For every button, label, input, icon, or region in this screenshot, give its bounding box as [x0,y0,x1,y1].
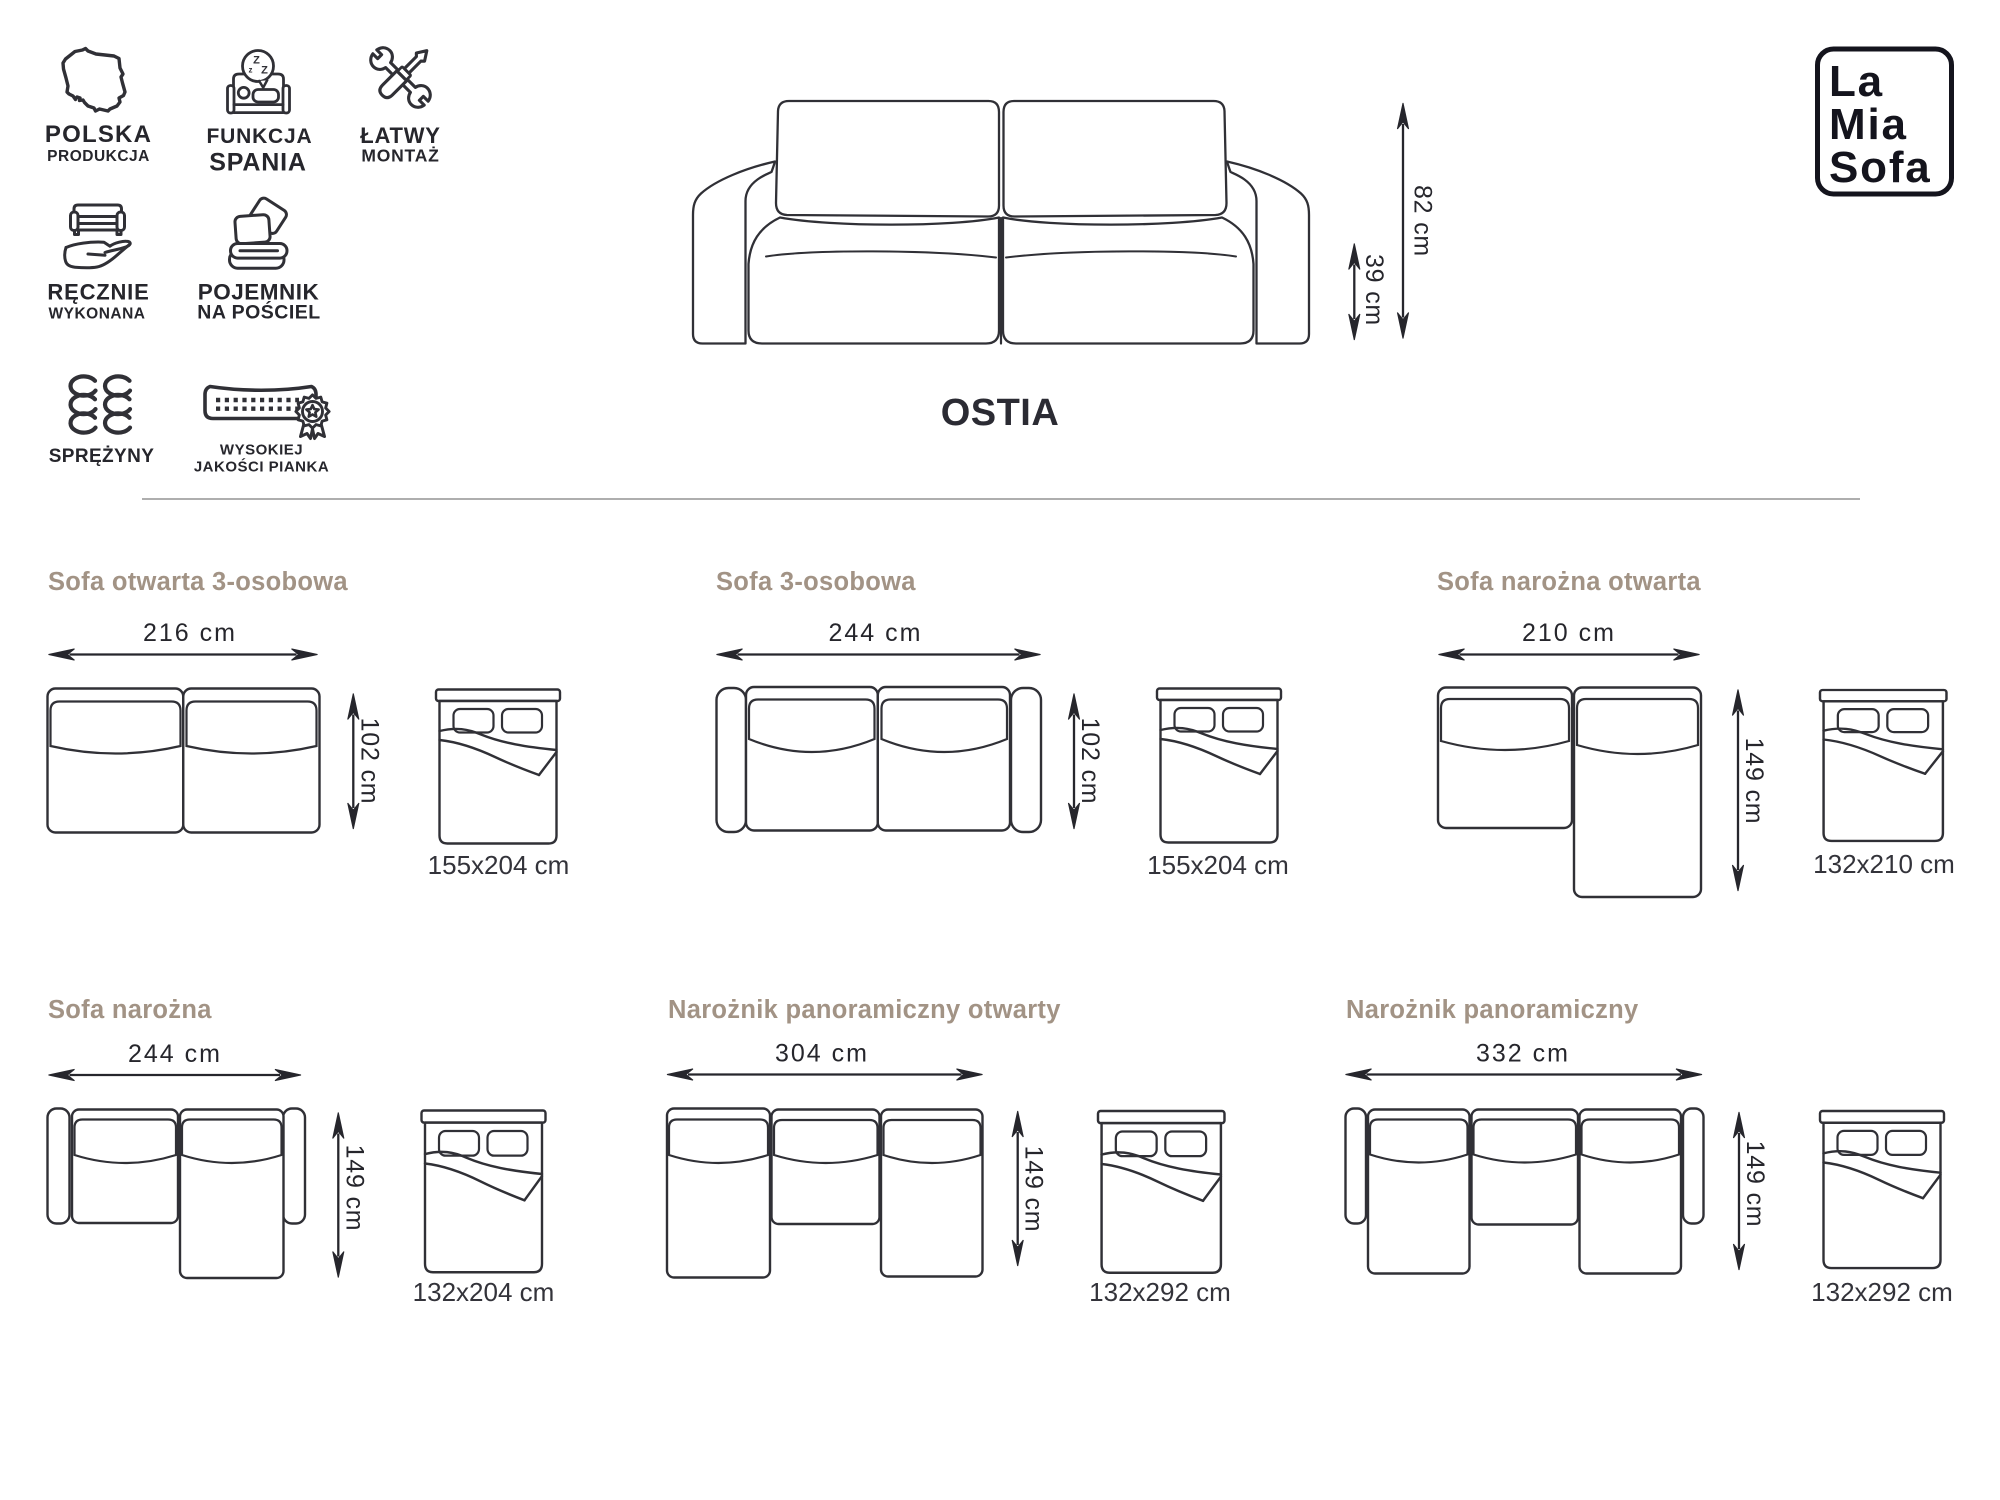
svg-text:MONTAŻ: MONTAŻ [361,146,439,166]
svg-text:PRODUKCJA: PRODUKCJA [47,148,150,165]
svg-text:102 cm: 102 cm [1076,718,1104,805]
svg-text:Mia: Mia [1829,100,1908,149]
svg-text:149 cm: 149 cm [340,1145,368,1232]
svg-text:ŁATWY: ŁATWY [360,123,441,148]
svg-text:OSTIA: OSTIA [941,392,1060,434]
svg-text:155x204 cm: 155x204 cm [428,850,570,880]
svg-text:NA POŚCIEL: NA POŚCIEL [197,300,320,324]
svg-text:82 cm: 82 cm [1409,185,1437,257]
svg-text:Sofa narożna: Sofa narożna [48,996,212,1024]
svg-text:FUNKCJA: FUNKCJA [207,125,313,148]
svg-text:z: z [249,66,253,75]
svg-text:Sofa: Sofa [1829,143,1932,192]
svg-text:210 cm: 210 cm [1522,619,1616,647]
svg-text:155x204 cm: 155x204 cm [1147,850,1289,880]
svg-text:149 cm: 149 cm [1741,1141,1769,1228]
svg-text:Narożnik panoramiczny otwarty: Narożnik panoramiczny otwarty [668,996,1061,1024]
svg-text:WYSOKIEJ: WYSOKIEJ [220,442,303,459]
svg-text:304 cm: 304 cm [775,1040,869,1068]
svg-text:WYKONANA: WYKONANA [49,306,146,323]
svg-text:SPRĘŻYNY: SPRĘŻYNY [49,446,155,467]
svg-text:Z: Z [253,55,260,67]
svg-text:132x292 cm: 132x292 cm [1089,1277,1231,1307]
svg-text:244 cm: 244 cm [128,1040,222,1068]
svg-text:SPANIA: SPANIA [209,149,306,177]
svg-text:216 cm: 216 cm [143,619,237,647]
svg-text:POLSKA: POLSKA [45,121,152,148]
svg-text:39 cm: 39 cm [1360,254,1388,326]
svg-text:244 cm: 244 cm [829,619,923,647]
svg-text:132x292 cm: 132x292 cm [1811,1277,1953,1307]
svg-text:132x204 cm: 132x204 cm [413,1277,555,1307]
svg-text:RĘCZNIE: RĘCZNIE [47,280,149,305]
svg-text:JAKOŚCI PIANKA: JAKOŚCI PIANKA [194,458,329,476]
svg-text:149 cm: 149 cm [1740,738,1768,825]
svg-text:Z: Z [261,65,268,77]
svg-text:102 cm: 102 cm [355,718,383,805]
svg-text:Sofa 3-osobowa: Sofa 3-osobowa [716,568,916,596]
svg-text:La: La [1829,57,1884,106]
svg-text:132x210 cm: 132x210 cm [1813,849,1955,879]
svg-text:149 cm: 149 cm [1019,1146,1047,1233]
svg-text:Narożnik panoramiczny: Narożnik panoramiczny [1346,996,1639,1024]
svg-text:Sofa otwarta 3-osobowa: Sofa otwarta 3-osobowa [48,568,348,596]
svg-text:Sofa narożna otwarta: Sofa narożna otwarta [1437,568,1701,596]
svg-text:332 cm: 332 cm [1476,1040,1570,1068]
